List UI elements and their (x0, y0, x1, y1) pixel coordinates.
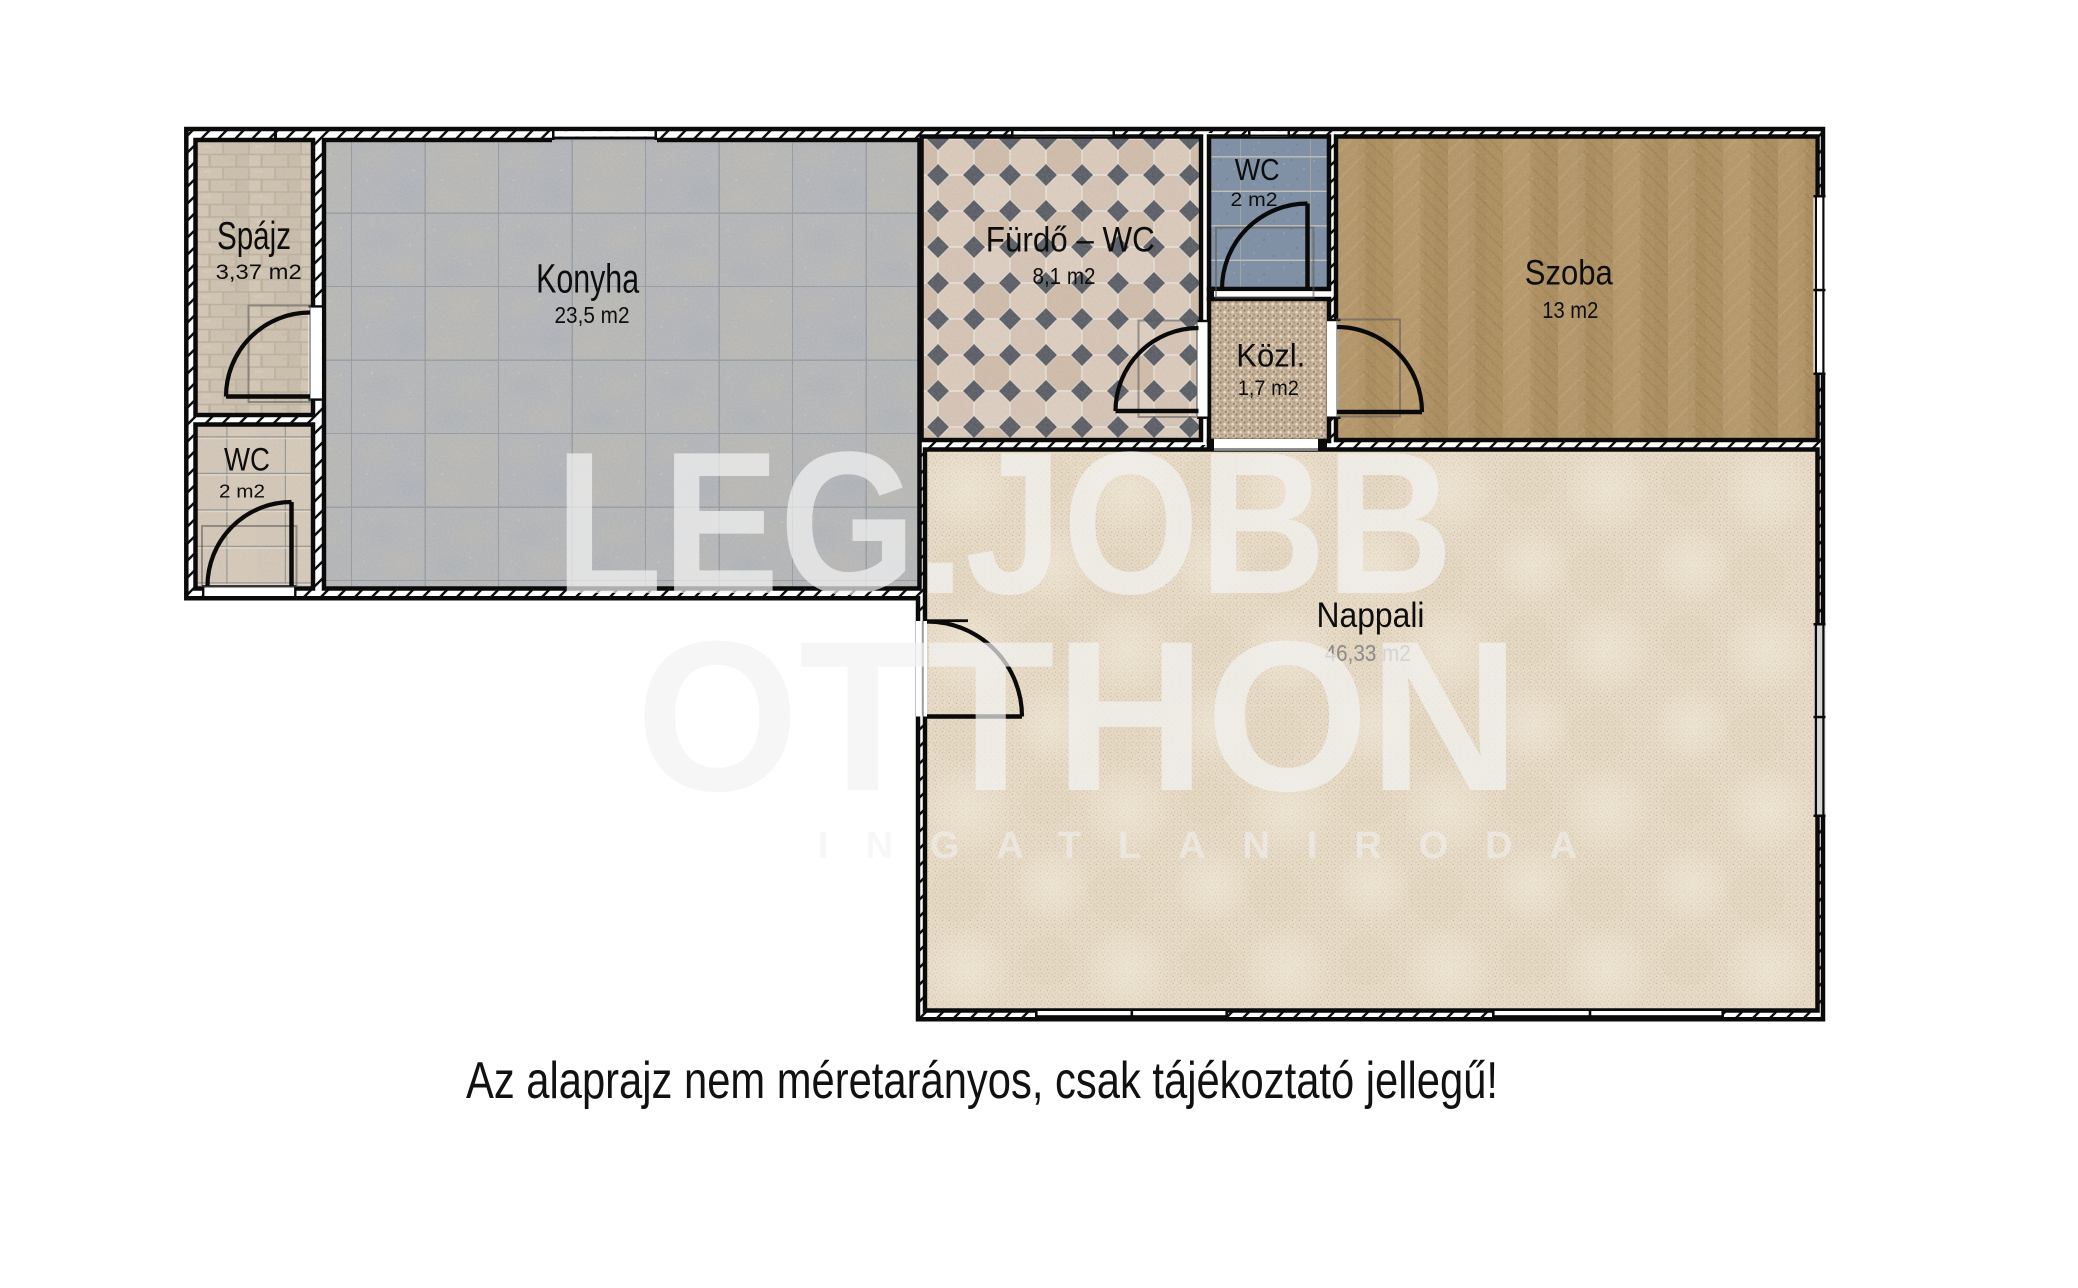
svg-text:Spájz: Spájz (217, 215, 291, 258)
svg-text:WC: WC (224, 442, 270, 478)
svg-text:Az alaprajz nem méretarányos,: Az alaprajz nem méretarányos, csak tájék… (466, 1052, 1498, 1110)
svg-text:WC: WC (1235, 152, 1280, 187)
svg-text:1,7 m2: 1,7 m2 (1238, 377, 1299, 400)
svg-text:OTTHON: OTTHON (636, 597, 1520, 836)
svg-text:23,5 m2: 23,5 m2 (555, 302, 630, 328)
svg-text:13 m2: 13 m2 (1542, 297, 1598, 323)
svg-text:2 m2: 2 m2 (219, 481, 265, 502)
svg-text:Szoba: Szoba (1525, 253, 1613, 293)
svg-text:Közl.: Közl. (1236, 337, 1305, 373)
svg-text:8,1 m2: 8,1 m2 (1033, 263, 1096, 289)
svg-text:Konyha: Konyha (536, 256, 639, 302)
svg-text:2 m2: 2 m2 (1231, 189, 1278, 211)
svg-text:Fürdő – WC: Fürdő – WC (986, 220, 1155, 259)
svg-text:3,37 m2: 3,37 m2 (216, 260, 302, 284)
